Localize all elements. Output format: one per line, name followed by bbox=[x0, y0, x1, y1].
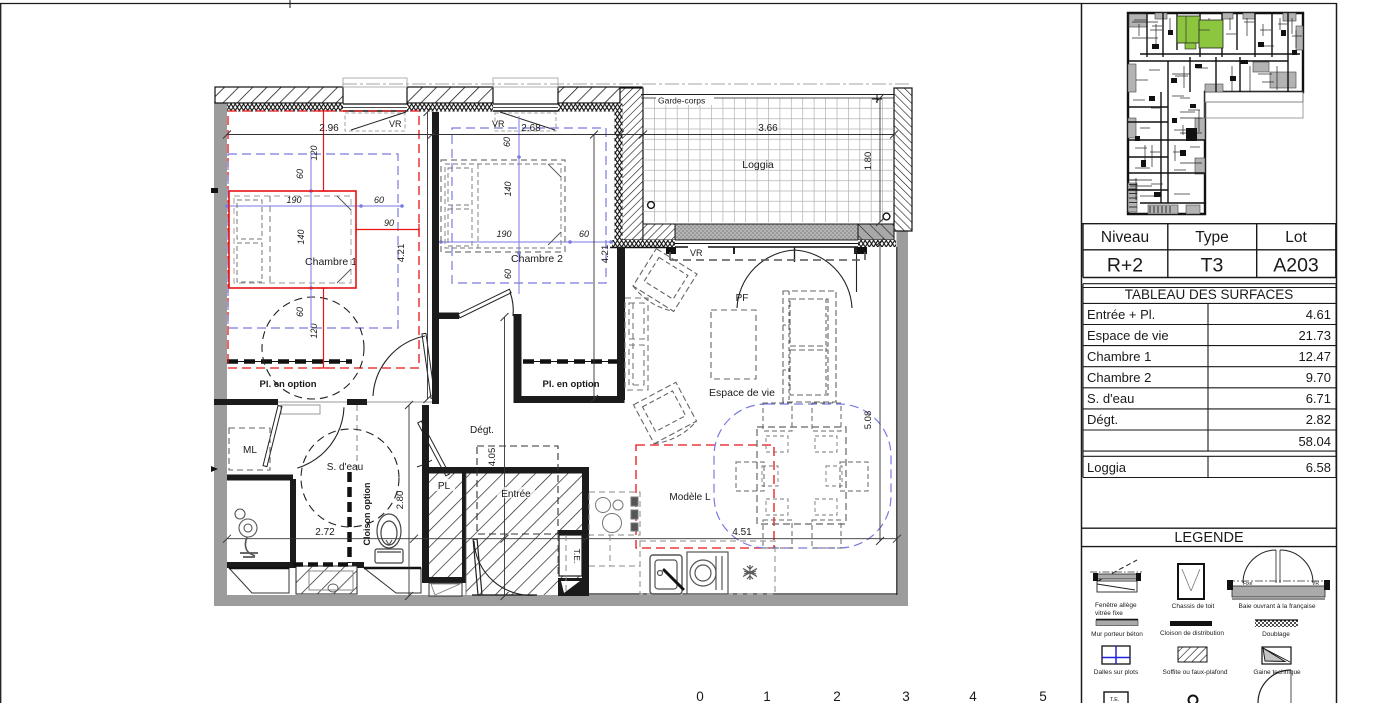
svg-text:Chambre 1: Chambre 1 bbox=[305, 256, 357, 268]
svg-text:S. d'eau: S. d'eau bbox=[327, 462, 363, 473]
svg-text:Soffite ou faux-plafond: Soffite ou faux-plafond bbox=[1163, 669, 1228, 676]
svg-text:VR: VR bbox=[690, 248, 703, 258]
svg-text:Entrée: Entrée bbox=[501, 489, 531, 500]
svg-text:4.51: 4.51 bbox=[732, 527, 752, 538]
svg-text:Niveau: Niveau bbox=[1101, 229, 1149, 246]
svg-text:Garde-corps: Garde-corps bbox=[658, 96, 705, 106]
svg-text:190: 190 bbox=[496, 229, 511, 239]
svg-text:Loggia: Loggia bbox=[1087, 460, 1127, 475]
svg-text:Pl. en option: Pl. en option bbox=[260, 379, 317, 390]
svg-text:PL: PL bbox=[438, 481, 451, 492]
svg-text:60: 60 bbox=[295, 169, 305, 179]
svg-text:60: 60 bbox=[503, 269, 513, 279]
svg-text:1.80: 1.80 bbox=[863, 152, 874, 171]
svg-text:60: 60 bbox=[579, 229, 589, 239]
svg-text:2.82: 2.82 bbox=[1306, 412, 1331, 427]
svg-text:2.96: 2.96 bbox=[319, 123, 339, 134]
svg-text:ML: ML bbox=[243, 445, 257, 456]
svg-text:4: 4 bbox=[969, 689, 977, 703]
svg-text:vitrée fixe: vitrée fixe bbox=[1095, 610, 1123, 617]
svg-text:1: 1 bbox=[763, 689, 771, 703]
svg-text:Cloison de distribution: Cloison de distribution bbox=[1160, 630, 1224, 637]
svg-text:140: 140 bbox=[503, 181, 513, 196]
svg-text:4.21: 4.21 bbox=[396, 244, 407, 263]
svg-text:A203: A203 bbox=[1273, 255, 1319, 277]
svg-text:LEGENDE: LEGENDE bbox=[1174, 530, 1244, 546]
svg-text:140: 140 bbox=[296, 229, 306, 244]
svg-text:T.E.: T.E. bbox=[572, 549, 582, 564]
svg-text:S. d'eau: S. d'eau bbox=[1087, 391, 1134, 406]
svg-text:4.61: 4.61 bbox=[1306, 307, 1331, 322]
svg-text:5.08: 5.08 bbox=[863, 411, 874, 430]
svg-text:2.72: 2.72 bbox=[315, 527, 335, 538]
svg-text:Espace de vie: Espace de vie bbox=[1087, 328, 1169, 343]
svg-text:Entrée + Pl.: Entrée + Pl. bbox=[1087, 307, 1155, 322]
svg-text:Espace de vie: Espace de vie bbox=[709, 387, 775, 399]
svg-text:Mur porteur béton: Mur porteur béton bbox=[1091, 631, 1143, 638]
svg-text:Dégt.: Dégt. bbox=[1087, 412, 1118, 427]
svg-text:Modèle L: Modèle L bbox=[669, 492, 711, 503]
svg-text:6.58: 6.58 bbox=[1306, 460, 1331, 475]
svg-text:58.04: 58.04 bbox=[1298, 434, 1331, 449]
svg-text:2: 2 bbox=[833, 689, 841, 703]
svg-text:3: 3 bbox=[902, 689, 910, 703]
svg-text:T.E.: T.E. bbox=[1110, 697, 1120, 703]
svg-text:60: 60 bbox=[295, 307, 305, 317]
svg-text:4.05: 4.05 bbox=[487, 448, 498, 467]
svg-text:60: 60 bbox=[374, 195, 384, 205]
svg-text:21.73: 21.73 bbox=[1298, 328, 1331, 343]
svg-text:Pl. en option: Pl. en option bbox=[543, 379, 600, 390]
svg-text:Doublage: Doublage bbox=[1262, 631, 1290, 638]
svg-text:Type: Type bbox=[1195, 229, 1229, 246]
svg-text:Chambre 2: Chambre 2 bbox=[1087, 370, 1151, 385]
svg-text:3.66: 3.66 bbox=[758, 123, 778, 134]
svg-text:Loggia: Loggia bbox=[742, 159, 774, 171]
svg-text:R+2: R+2 bbox=[1107, 255, 1143, 277]
svg-text:VR: VR bbox=[492, 119, 505, 129]
svg-text:VR: VR bbox=[389, 119, 402, 129]
svg-text:4.21: 4.21 bbox=[600, 245, 611, 264]
svg-text:Fenêtre allège: Fenêtre allège bbox=[1095, 602, 1137, 609]
svg-text:0: 0 bbox=[696, 689, 704, 703]
svg-text:Lot: Lot bbox=[1285, 229, 1307, 246]
svg-text:90: 90 bbox=[384, 218, 394, 228]
svg-text:PF: PF bbox=[736, 293, 749, 304]
svg-text:5: 5 bbox=[1039, 689, 1047, 703]
svg-text:190: 190 bbox=[286, 195, 301, 205]
svg-text:Chambre 2: Chambre 2 bbox=[511, 253, 563, 265]
svg-text:2.68: 2.68 bbox=[521, 123, 541, 134]
svg-text:Dalles sur plots: Dalles sur plots bbox=[1094, 669, 1139, 676]
svg-text:Baie ouvrant à la française: Baie ouvrant à la française bbox=[1239, 603, 1316, 610]
svg-text:TABLEAU DES SURFACES: TABLEAU DES SURFACES bbox=[1125, 287, 1294, 302]
svg-text:9.70: 9.70 bbox=[1306, 370, 1331, 385]
svg-text:Chassis de toit: Chassis de toit bbox=[1172, 603, 1215, 610]
svg-text:Cloison option: Cloison option bbox=[362, 483, 372, 546]
svg-text:Dégt.: Dégt. bbox=[470, 425, 494, 436]
svg-text:60: 60 bbox=[502, 137, 512, 147]
svg-text:2.80: 2.80 bbox=[395, 491, 406, 510]
svg-text:6.71: 6.71 bbox=[1306, 391, 1331, 406]
svg-text:T3: T3 bbox=[1201, 255, 1224, 277]
svg-text:12.47: 12.47 bbox=[1298, 349, 1331, 364]
svg-text:Chambre 1: Chambre 1 bbox=[1087, 349, 1151, 364]
